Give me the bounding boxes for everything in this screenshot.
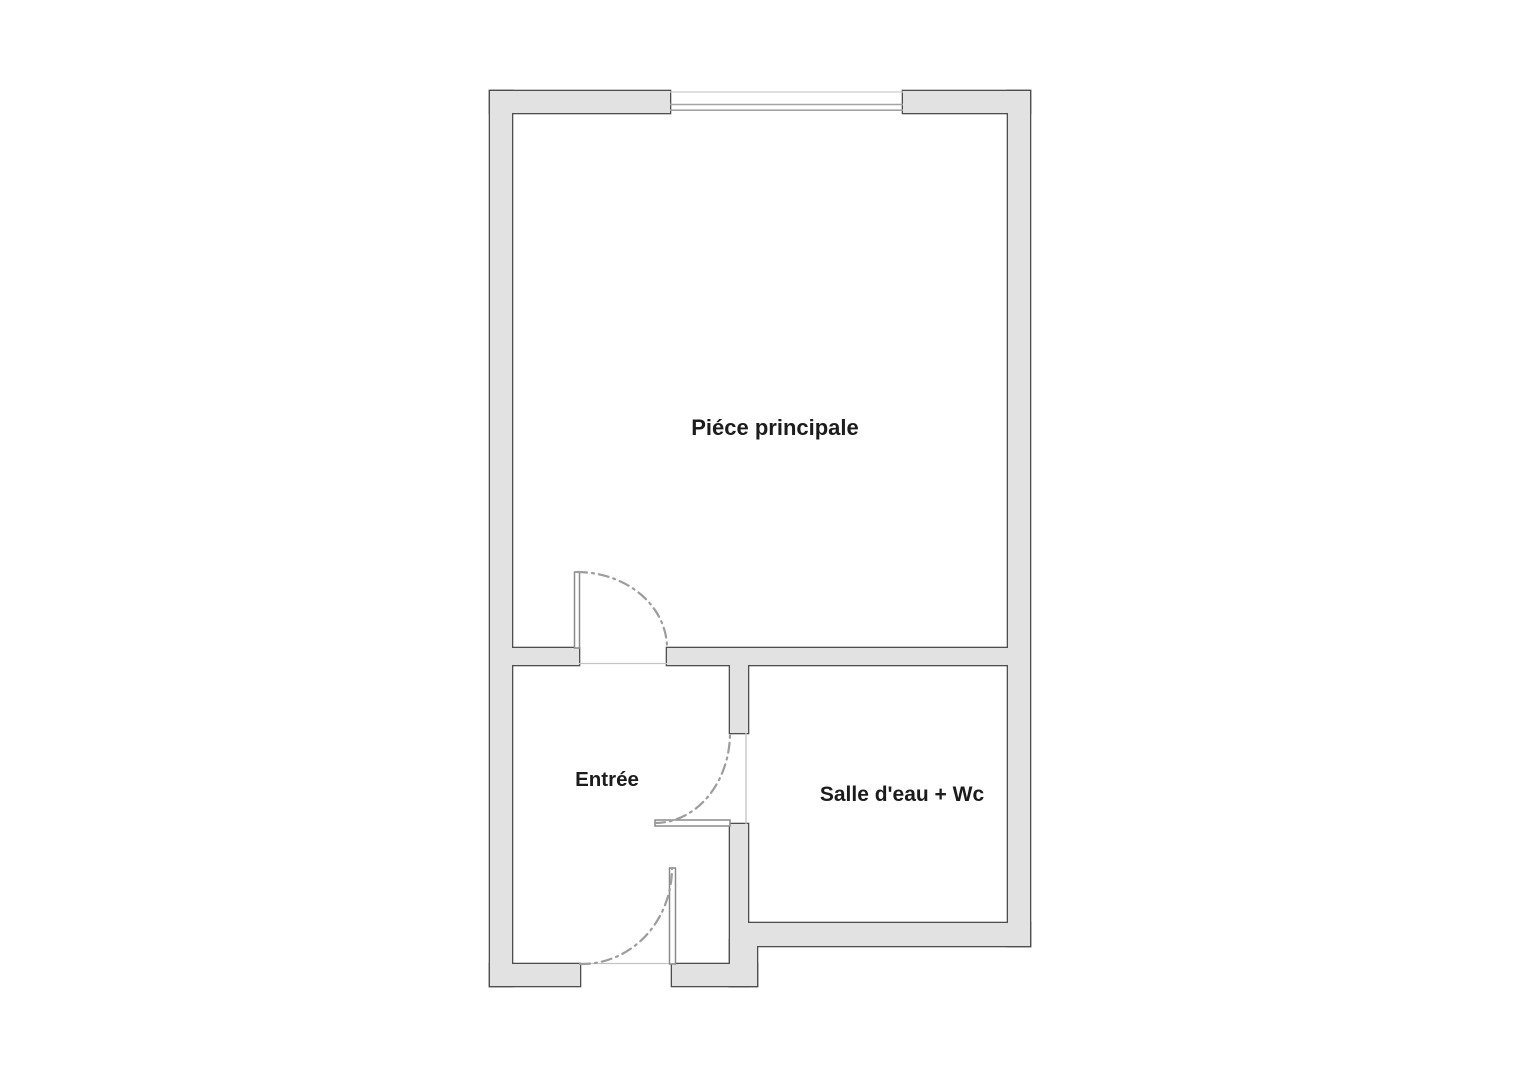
door-main-room — [575, 572, 668, 648]
door-entry — [580, 868, 676, 964]
door-salle-deau-leaf — [655, 820, 730, 826]
room-label-entree: Entrée — [575, 768, 639, 791]
room-label-salle-deau-wc: Salle d'eau + Wc — [820, 783, 985, 806]
room-label-piece-principale: Piéce principale — [691, 415, 859, 440]
door-salle-deau — [655, 733, 730, 826]
floor-plan-canvas: Piéce principale Entrée Salle d'eau + Wc — [0, 0, 1527, 1080]
door-main-room-leaf — [575, 572, 580, 648]
door-entry-arc — [580, 868, 672, 964]
floor-plan-svg: Piéce principale Entrée Salle d'eau + Wc — [0, 0, 1527, 1080]
door-main-room-arc — [577, 572, 667, 648]
window-top-wall — [670, 92, 903, 110]
walls-fill-layer — [490, 91, 1030, 986]
walls-outline-layer — [490, 91, 1030, 986]
door-salle-deau-arc — [655, 733, 730, 823]
